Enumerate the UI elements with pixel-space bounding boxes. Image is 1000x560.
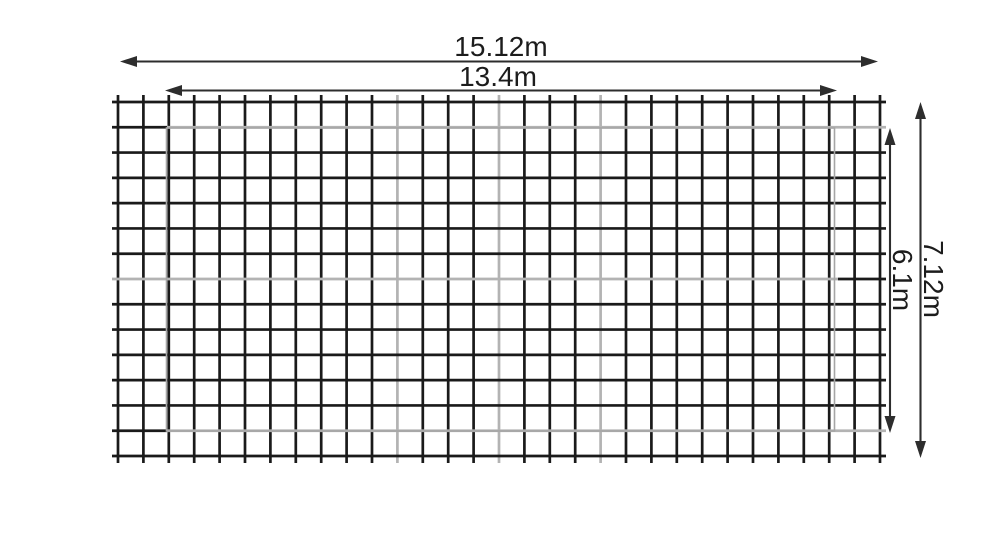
dimension-diagram: 15.12m 13.4m 7.12m 6.1m [0, 0, 1000, 560]
inner-width-label: 13.4m [459, 61, 537, 92]
mesh-grid [112, 95, 886, 463]
outer-width-label: 15.12m [454, 31, 547, 62]
inner-height-label: 6.1m [887, 249, 918, 311]
mesh-drawing-canvas: 15.12m 13.4m 7.12m 6.1m [0, 0, 1000, 560]
outer-height-label: 7.12m [918, 240, 949, 318]
